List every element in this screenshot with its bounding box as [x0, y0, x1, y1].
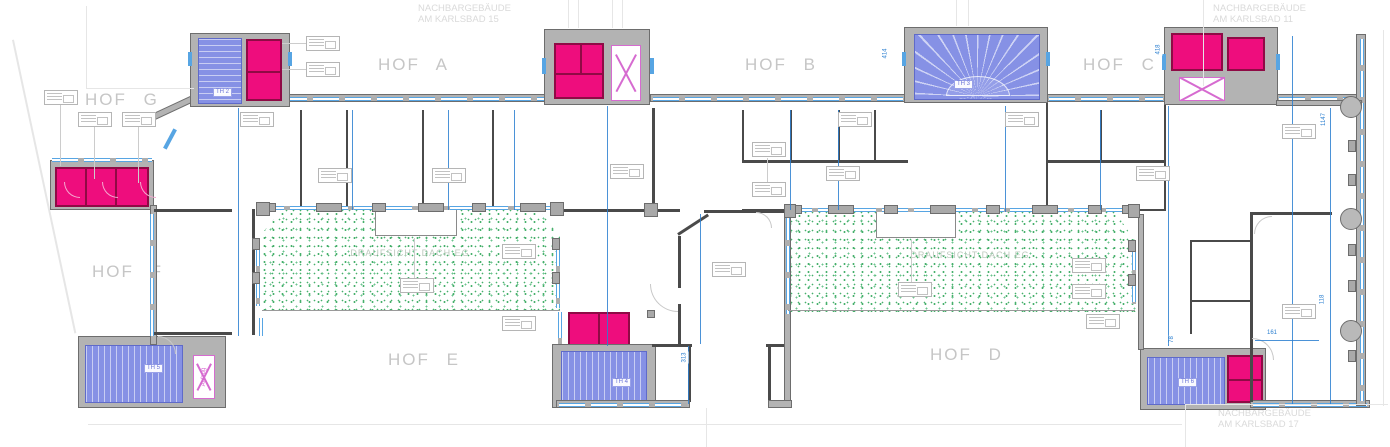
dimension-line — [1255, 340, 1319, 341]
partition-wall — [1048, 160, 1164, 163]
dimension-line — [1168, 106, 1169, 346]
window-tag — [826, 166, 860, 181]
parcel-line — [706, 408, 707, 447]
window-band — [259, 318, 263, 336]
window-tag — [1136, 166, 1170, 181]
facade-pier — [252, 272, 260, 284]
shaft-room — [1227, 37, 1265, 71]
partition-wall — [422, 110, 424, 208]
facade-pier — [1128, 240, 1136, 252]
dimension-label: 118 — [1319, 294, 1326, 306]
parcel-line — [86, 88, 194, 89]
partition-wall — [742, 110, 744, 162]
elevator — [1179, 77, 1225, 101]
south-facade-wall — [768, 400, 792, 408]
shaft-room — [1171, 33, 1223, 71]
facade-pier — [1128, 204, 1140, 218]
stair-label-th6: TH 6 — [1178, 378, 1197, 387]
window-notch — [188, 52, 192, 66]
facade-pier — [256, 202, 270, 216]
stairwell-th3 — [914, 34, 1040, 100]
facade-pier — [552, 272, 560, 284]
window-notch — [650, 58, 654, 74]
facade-pier — [552, 238, 560, 250]
window-notch — [1162, 54, 1166, 70]
column — [644, 203, 658, 217]
facade-pier — [252, 238, 260, 250]
dimension-line — [1100, 110, 1101, 210]
bay-pilaster — [520, 203, 546, 212]
north-facade-wall — [246, 94, 548, 102]
door-arc — [650, 284, 678, 312]
stair-block-th6 — [1140, 348, 1266, 410]
facade-pier — [1348, 244, 1356, 256]
facade-column — [1340, 96, 1362, 118]
window-band — [786, 214, 790, 314]
partition-wall — [492, 110, 494, 208]
leader-line — [767, 158, 768, 184]
window-tag — [306, 62, 340, 77]
leader-line — [138, 127, 139, 183]
dimension-line — [352, 110, 353, 210]
window-notch — [1276, 54, 1280, 70]
window-tag — [1005, 112, 1039, 127]
window-tag — [306, 36, 340, 51]
room-divider — [1229, 379, 1261, 381]
window-notch — [288, 52, 292, 66]
window-tag — [318, 168, 352, 183]
facade-column — [1340, 208, 1362, 230]
stair-label-th4: TH 4 — [612, 378, 631, 387]
north-facade-wall — [1046, 94, 1166, 102]
partition-wall — [1190, 240, 1192, 334]
floor-plan: NACHBARGEBÄUDE AM KARLSBAD 15 NACHBARGEB… — [0, 0, 1390, 447]
window-tag — [610, 164, 644, 179]
facade-pier — [1348, 174, 1356, 186]
dimension-line — [448, 110, 449, 210]
hall-wall — [678, 304, 681, 346]
parcel-line — [1203, 0, 1204, 86]
dimension-line — [790, 110, 791, 210]
leader-line — [282, 43, 306, 44]
stair-tower-4 — [1164, 27, 1278, 105]
window-band — [150, 214, 154, 336]
courtyard-label-hof-g: HOF G — [85, 90, 159, 110]
window-tag — [122, 112, 156, 127]
window-band — [258, 206, 558, 210]
parcel-line — [88, 424, 1182, 425]
window-tag — [1086, 314, 1120, 329]
facade-pier — [550, 202, 564, 216]
bay-pilaster — [418, 203, 444, 212]
stairwell-th4 — [561, 351, 647, 403]
window-tag — [432, 168, 466, 183]
shaft-room — [568, 312, 630, 346]
door-arc — [1252, 338, 1274, 360]
bay-pilaster — [930, 205, 956, 214]
bay-pilaster — [1032, 205, 1058, 214]
leader-line — [911, 240, 912, 282]
courtyard-label-hof-c: HOF C — [1083, 55, 1156, 75]
dimension-label: 418 — [1156, 43, 1163, 55]
window-band — [52, 158, 152, 162]
room-divider — [580, 45, 582, 73]
column — [647, 310, 655, 318]
partition-wall — [1190, 300, 1250, 302]
parcel-line — [1185, 404, 1388, 405]
window-tag — [1072, 258, 1106, 273]
window-notch — [542, 58, 546, 74]
dimension-label: 313 — [682, 351, 689, 363]
roof-notch — [876, 212, 956, 238]
neighbour-label-karlsbad-17: NACHBARGEBÄUDE AM KARLSBAD 17 — [1218, 408, 1311, 430]
hall-wall — [704, 210, 788, 213]
door-arc — [756, 212, 772, 228]
room-divider — [598, 314, 600, 344]
window-tag — [502, 244, 536, 259]
window-tag — [240, 112, 274, 127]
roof-overlay-text: DRAUFSICHT DACH EG — [300, 248, 520, 258]
parcel-line — [622, 0, 623, 28]
bay-pilaster — [884, 205, 898, 214]
neighbour-label-karlsbad-15: NACHBARGEBÄUDE AM KARLSBAD 15 — [418, 3, 511, 25]
parcel-line — [86, 6, 87, 88]
window-notch — [1046, 52, 1050, 66]
dimension-line — [238, 108, 239, 336]
parcel-line — [956, 0, 957, 26]
elevator — [611, 45, 641, 101]
corridor-wall — [556, 209, 680, 212]
parcel-line — [1185, 404, 1186, 447]
dimension-label: 1147 — [1321, 112, 1328, 127]
bay-pilaster — [472, 203, 486, 212]
dimension-line — [1330, 108, 1331, 404]
shaft-room — [246, 39, 282, 101]
parcel-line — [612, 0, 613, 28]
dimension-line — [514, 110, 515, 210]
window-tag — [502, 316, 536, 331]
window-tag — [1282, 304, 1316, 319]
partition-wall — [300, 110, 302, 208]
window-band-diagonal — [163, 128, 177, 149]
hall-wall — [678, 236, 681, 288]
window-tag — [752, 182, 786, 197]
facade-pier — [1348, 280, 1356, 292]
window-tag — [44, 90, 78, 105]
bay-pilaster — [986, 205, 1000, 214]
door-arc — [1254, 216, 1272, 234]
window-band — [653, 97, 903, 101]
neighbour-line: NACHBARGEBÄUDE — [1213, 3, 1306, 14]
partition-wall — [1046, 103, 1048, 210]
room-divider — [85, 169, 87, 205]
bay-pilaster — [372, 203, 386, 212]
window-tag — [400, 278, 434, 293]
stair-label-th5: TH 5 — [144, 364, 163, 373]
roof-overlay-text: DRAUFSICHT DACH EG — [860, 250, 1080, 260]
courtyard-label-hof-e: HOF E — [388, 350, 460, 370]
dimension-label: 78 — [1169, 335, 1176, 344]
stair-tower-2 — [544, 29, 650, 105]
shaft-room — [554, 43, 604, 99]
neighbour-line: AM KARLSBAD 11 — [1213, 14, 1306, 25]
hall-wall — [652, 344, 692, 347]
stair-label-th2: TH 2 — [213, 88, 232, 97]
dimension-label: 161 — [1266, 330, 1278, 337]
facade-pier — [1348, 350, 1356, 362]
room-divider — [556, 73, 602, 75]
courtyard-d-east-wall — [1138, 214, 1144, 350]
courtyard-label-hof-d: HOF D — [930, 345, 1003, 365]
window-tag — [78, 112, 112, 127]
window-band — [559, 403, 687, 407]
stair-tower-3 — [904, 27, 1048, 103]
facade-pier — [1348, 140, 1356, 152]
courtyard-label-hof-a: HOF A — [378, 55, 449, 75]
corridor-wall — [154, 209, 232, 212]
roof-edge-line — [788, 310, 1135, 311]
partition-wall — [1164, 105, 1166, 210]
dimension-line — [700, 214, 701, 344]
corridor-wall — [152, 332, 232, 335]
north-facade-wall — [650, 94, 906, 102]
leader-line — [94, 127, 95, 179]
window-band — [558, 312, 562, 344]
neighbour-line: AM KARLSBAD 15 — [418, 14, 511, 25]
roof-edge-line — [262, 310, 560, 311]
elevator: Aufzug — [193, 355, 215, 399]
stair-block-th4 — [552, 344, 656, 408]
neighbour-label-karlsbad-11: NACHBARGEBÄUDE AM KARLSBAD 11 — [1213, 3, 1306, 25]
parcel-line — [568, 0, 569, 28]
bay-pilaster — [828, 205, 854, 214]
window-tag — [1072, 284, 1106, 299]
partition-wall — [1190, 240, 1250, 242]
facade-pier — [1128, 274, 1136, 286]
dimension-line — [607, 106, 608, 346]
partition-wall — [652, 108, 655, 210]
window-notch — [902, 52, 906, 66]
south-facade-wall — [556, 400, 690, 408]
roof-notch — [375, 210, 457, 236]
bay-pilaster — [316, 203, 342, 212]
partition-wall — [874, 110, 876, 162]
right-wing-wall — [1250, 212, 1253, 402]
neighbour-line: AM KARLSBAD 17 — [1218, 419, 1311, 430]
facade-column — [1340, 320, 1362, 342]
shaft-room — [1227, 355, 1263, 403]
leader-line — [60, 104, 61, 166]
right-wing-wall — [1250, 212, 1332, 215]
window-tag — [712, 262, 746, 277]
window-tag — [1282, 124, 1316, 139]
dimension-line — [1292, 36, 1293, 404]
hall-wall-chamfer — [677, 214, 709, 236]
elevator-label: Aufzug — [201, 368, 207, 387]
window-tag — [898, 282, 932, 297]
room-divider — [248, 71, 280, 73]
courtyard-label-hof-b: HOF B — [745, 55, 817, 75]
window-band — [1049, 97, 1163, 101]
parcel-line — [578, 0, 579, 28]
parcel-line — [968, 0, 969, 26]
window-tag — [838, 112, 872, 127]
leader-line — [414, 238, 415, 278]
window-tag — [752, 142, 786, 157]
window-band — [249, 97, 545, 101]
partition-wall — [346, 110, 348, 208]
stair-tower-1 — [190, 33, 290, 107]
entrance-corridor-wall — [768, 346, 771, 402]
dimension-label: 414 — [883, 47, 890, 59]
stair-label-th3: TH 3 — [954, 80, 973, 89]
leader-line — [282, 69, 306, 70]
parcel-line — [1383, 30, 1384, 406]
neighbour-line: NACHBARGEBÄUDE — [418, 3, 511, 14]
